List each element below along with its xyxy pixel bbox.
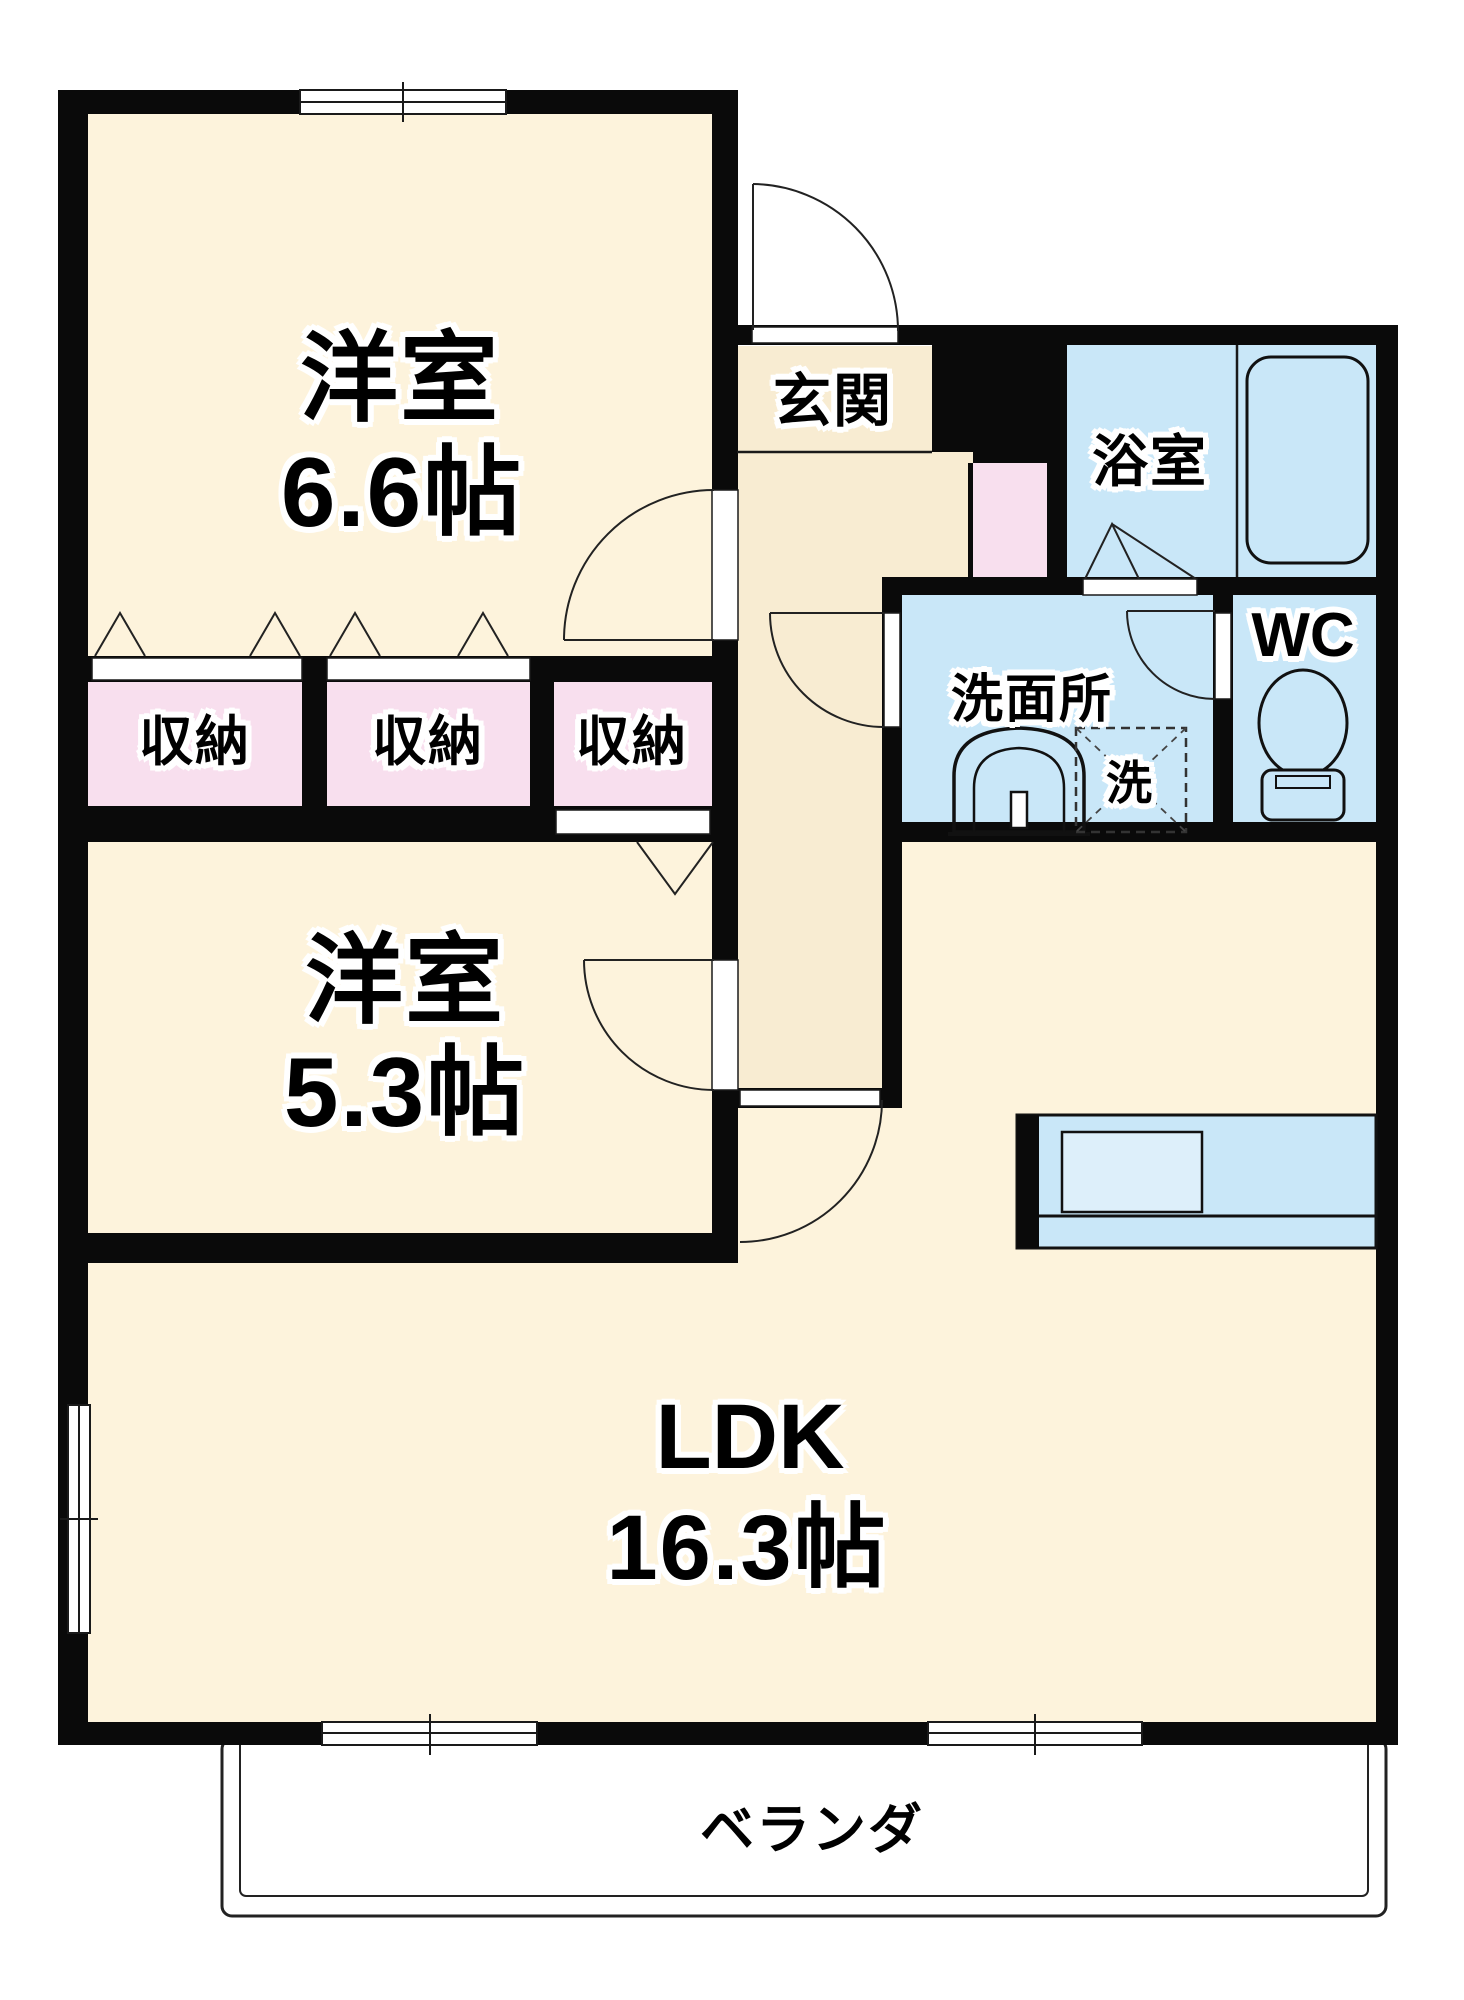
kitchen-sink — [1062, 1132, 1202, 1212]
floor-plan: 洋室 6.6帖 玄関 浴室 収納 収納 収納 洗面所 洗 WC 洋室 5.3帖 … — [0, 0, 1464, 2000]
door-opening-washroom — [884, 613, 900, 727]
storage2-label: 収納 — [372, 715, 484, 769]
wall-entrance-right-step — [973, 452, 1067, 463]
wc-label: WC — [1251, 605, 1354, 667]
ldk-name-label: LDK — [655, 1391, 844, 1483]
room1-name-label: 洋室 — [300, 329, 500, 427]
toilet-tank — [1262, 770, 1344, 820]
door-opening-room2 — [712, 960, 738, 1090]
wall-entrance-right-block — [932, 325, 1067, 452]
door-opening-bathroom — [1083, 579, 1197, 595]
door-opening-storage-3 — [556, 810, 710, 834]
kitchen-counter-end — [1017, 1115, 1039, 1248]
washbasin-drain — [1011, 792, 1027, 828]
wall-storage-divider-1 — [302, 656, 327, 806]
wall-bathroom-left — [1047, 463, 1067, 577]
storage3-label: 収納 — [576, 715, 688, 769]
corridor-floor — [738, 577, 882, 1088]
room1-size-label: 6.6帖 — [281, 443, 523, 541]
floor-plan-drawing — [0, 0, 1464, 2000]
room2-name-label: 洋室 — [305, 931, 505, 1029]
room2-size-label: 5.3帖 — [284, 1043, 526, 1141]
wall-bottom — [58, 1722, 1398, 1745]
door-opening-storage-2 — [327, 658, 530, 680]
storage1-label: 収納 — [139, 715, 251, 769]
ldk-size-label: 16.3帖 — [606, 1502, 887, 1594]
wall-room2-bottom — [58, 1233, 738, 1263]
door-opening-storage-1 — [92, 658, 302, 680]
hall-step-floor — [973, 463, 1047, 577]
door-opening-entrance — [752, 327, 898, 343]
entrance-hall-floor — [737, 452, 973, 577]
door-opening-wc — [1215, 613, 1231, 699]
veranda-label: ベランダ — [700, 1803, 924, 1857]
bathroom-label: 浴室 — [1092, 434, 1208, 490]
wall-right — [1376, 325, 1398, 1745]
door-opening-room1 — [712, 490, 738, 640]
room-ldk-floor-east — [902, 842, 1376, 1722]
door-opening-corridor-ldk — [740, 1090, 880, 1106]
washing-machine-label: 洗 — [1106, 760, 1154, 806]
wall-hall-pink-divider — [968, 463, 973, 577]
room-ldk-floor-corridor-mouth — [738, 1108, 902, 1262]
washroom-label: 洗面所 — [951, 674, 1113, 726]
entrance-label: 玄関 — [773, 373, 893, 431]
door-arc-entrance — [753, 184, 898, 331]
